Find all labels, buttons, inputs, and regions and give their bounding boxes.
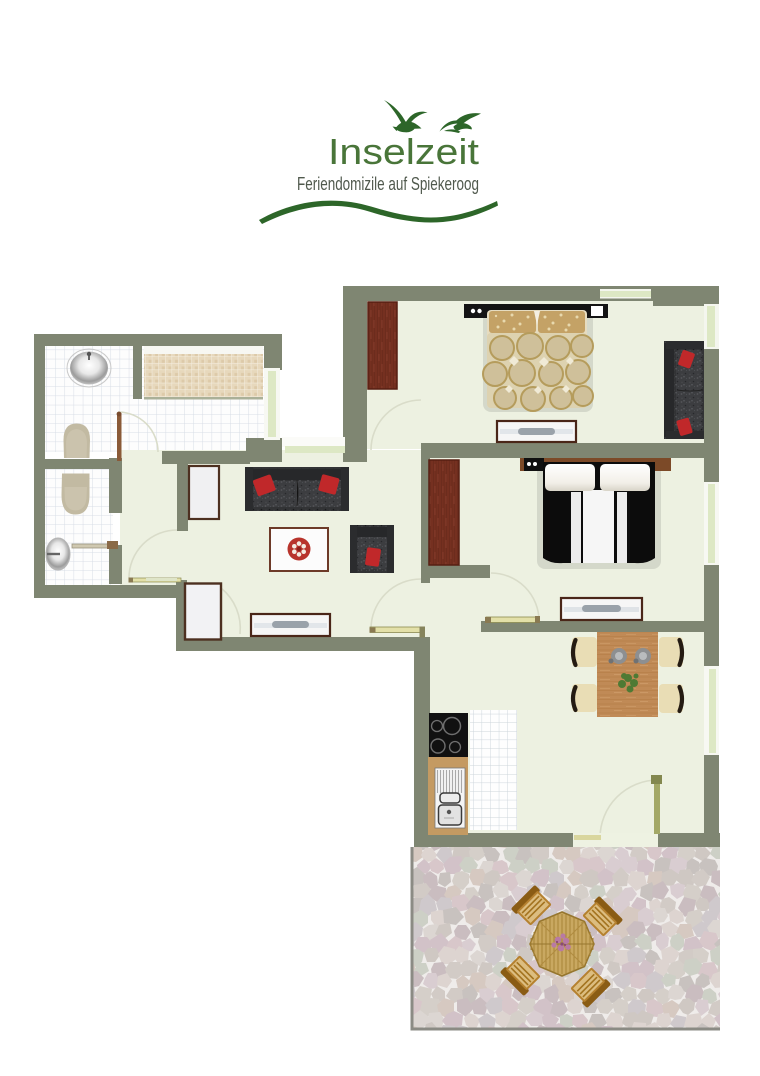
svg-text:Inselzeit: Inselzeit: [328, 131, 479, 172]
svg-text:Feriendomizile auf Spiekeroog: Feriendomizile auf Spiekeroog: [297, 173, 479, 194]
